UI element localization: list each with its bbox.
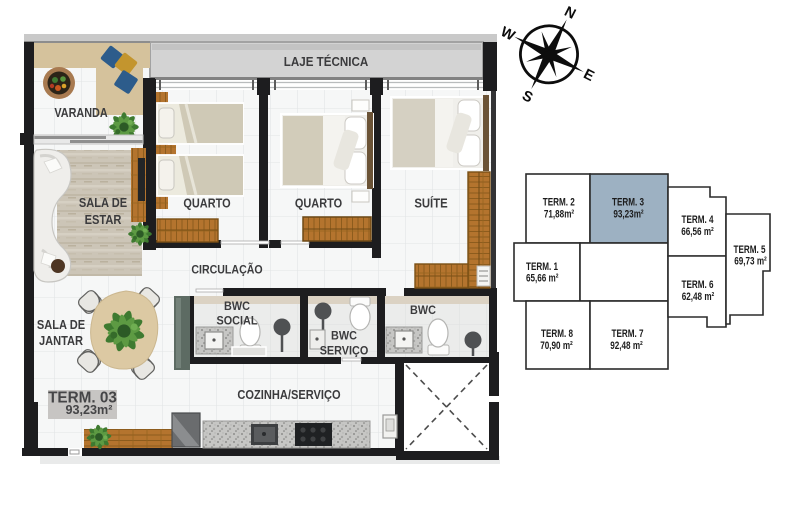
svg-text:SOCIAL: SOCIAL xyxy=(217,315,258,328)
svg-text:QUARTO: QUARTO xyxy=(183,196,230,211)
svg-text:SERVIÇO: SERVIÇO xyxy=(320,345,369,358)
svg-text:SALA DE: SALA DE xyxy=(37,317,85,332)
svg-text:TERM. 2: TERM. 2 xyxy=(543,196,575,209)
svg-text:TERM. 7: TERM. 7 xyxy=(611,328,643,341)
svg-text:VARANDA: VARANDA xyxy=(54,106,108,120)
svg-text:JANTAR: JANTAR xyxy=(39,333,84,348)
svg-text:TERM. 8: TERM. 8 xyxy=(541,328,574,341)
svg-text:93,23m²: 93,23m² xyxy=(613,208,644,221)
svg-text:TERM. 4: TERM. 4 xyxy=(681,214,714,227)
svg-text:71,88m²: 71,88m² xyxy=(544,208,575,221)
svg-text:93,23m²: 93,23m² xyxy=(66,403,113,417)
svg-text:COZINHA/SERVIÇO: COZINHA/SERVIÇO xyxy=(237,387,340,402)
svg-text:SUÍTE: SUÍTE xyxy=(414,195,447,211)
svg-text:62,48 m²: 62,48 m² xyxy=(682,291,715,304)
svg-text:CIRCULAÇÃO: CIRCULAÇÃO xyxy=(191,263,262,277)
svg-text:TERM. 6: TERM. 6 xyxy=(681,279,714,292)
svg-text:65,66 m²: 65,66 m² xyxy=(526,272,559,285)
svg-text:QUARTO: QUARTO xyxy=(295,196,342,211)
svg-text:70,90 m²: 70,90 m² xyxy=(540,340,573,353)
svg-text:BWC: BWC xyxy=(224,300,251,313)
svg-text:69,73 m²: 69,73 m² xyxy=(734,255,767,268)
svg-text:TERM. 3: TERM. 3 xyxy=(612,196,645,209)
svg-text:SALA DE: SALA DE xyxy=(79,195,127,210)
svg-text:BWC: BWC xyxy=(331,330,358,343)
svg-text:66,56 m²: 66,56 m² xyxy=(681,226,714,239)
svg-text:92,48 m²: 92,48 m² xyxy=(610,340,643,353)
svg-text:LAJE TÉCNICA: LAJE TÉCNICA xyxy=(284,53,368,69)
svg-text:BWC: BWC xyxy=(410,304,437,317)
svg-text:ESTAR: ESTAR xyxy=(85,212,122,227)
